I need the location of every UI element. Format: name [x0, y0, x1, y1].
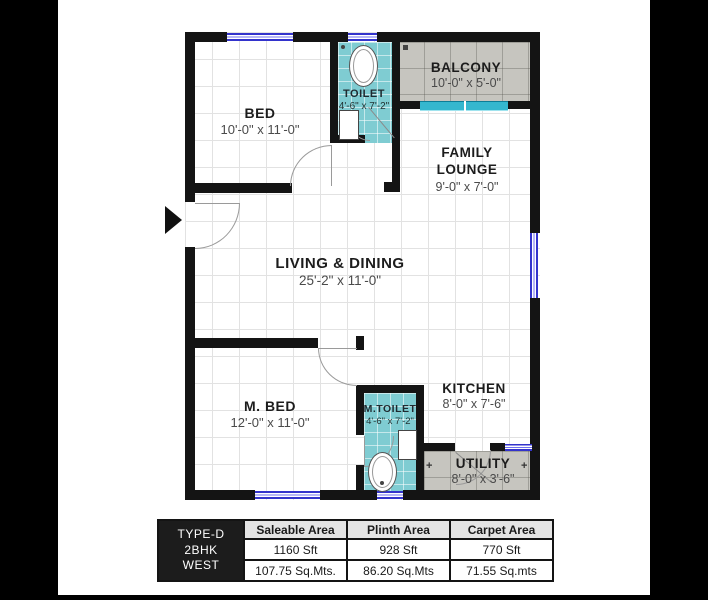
saleable-sqm-value: 107.75 Sq.Mts. [244, 560, 347, 581]
room-name: BALCONY [406, 60, 526, 75]
unit-type-line: 2BHK [159, 543, 243, 559]
floor-plan-page: + + BED 10'-0" x 11'-0" TOILET 4'-6" x 7… [0, 0, 708, 600]
wall-right-upper [530, 32, 540, 233]
wall-toilet-family [392, 32, 400, 192]
saleable-sft-value: 1160 Sft [244, 539, 347, 560]
wall-stub-foot [384, 182, 400, 192]
column-header-carpet: Carpet Area [450, 520, 553, 539]
unit-type-line: WEST [159, 558, 243, 574]
room-dims: 12'-0" x 11'-0" [210, 415, 330, 430]
room-dims: 10'-0" x 5'-0" [406, 76, 526, 90]
toilet-faucet-icon [341, 45, 345, 49]
unit-type-cell: TYPE-D 2BHK WEST [158, 520, 244, 581]
unit-type-line: TYPE-D [159, 527, 243, 543]
table-header-row: TYPE-D 2BHK WEST Saleable Area Plinth Ar… [158, 520, 553, 539]
wall-living-mbed [185, 338, 318, 348]
wall-top-right [377, 32, 540, 42]
plinth-sft-value: 928 Sft [347, 539, 450, 560]
wall-bottom-left [185, 490, 255, 500]
room-dims: 4'-6" x 7'-2" [326, 101, 402, 112]
balcony-drain-icon [403, 45, 408, 50]
wall-utility-top-left [424, 443, 455, 451]
room-dims: 10'-0" x 11'-0" [200, 122, 320, 137]
sliding-window-balcony-right-icon [466, 101, 508, 111]
window-mtoilet-icon [377, 491, 403, 499]
room-label-balcony: BALCONY 10'-0" x 5'-0" [406, 60, 526, 90]
wall-top-mid [293, 32, 348, 42]
wall-bed-bottom [185, 183, 292, 193]
room-dims: 4'-6" x 7'-2" [352, 416, 428, 427]
room-label-toilet: TOILET 4'-6" x 7'-2" [326, 88, 402, 112]
room-label-mbed: M. BED 12'-0" x 11'-0" [210, 398, 330, 430]
room-label-kitchen: KITCHEN 8'-0" x 7'-6" [414, 381, 534, 411]
wall-utility-top-right [490, 443, 505, 451]
room-name: TOILET [326, 88, 402, 100]
mtoilet-sink-icon [398, 430, 417, 460]
room-name: BED [200, 105, 320, 121]
toilet-sink-icon [339, 110, 359, 140]
window-mbed-icon [255, 491, 320, 499]
room-dims: 25'-2" x 11'-0" [260, 273, 420, 288]
room-name: LIVING & DINING [260, 255, 420, 272]
room-label-living-dining: LIVING & DINING 25'-2" x 11'-0" [260, 255, 420, 288]
room-name: FAMILY LOUNGE [412, 145, 522, 179]
mtoilet-faucet-icon [380, 481, 384, 485]
column-header-plinth: Plinth Area [347, 520, 450, 539]
wall-bottom-mid [320, 490, 377, 500]
mtoilet-wc-icon [368, 452, 397, 492]
room-dims: 8'-0" x 3'-6" [423, 472, 543, 486]
room-label-family-lounge: FAMILY LOUNGE 9'-0" x 7'-0" [412, 145, 522, 194]
wall-balcony-bottom-right [508, 101, 532, 109]
column-header-saleable: Saleable Area [244, 520, 347, 539]
room-label-utility: UTILITY 8'-0" x 3'-6" [423, 456, 543, 486]
room-label-bed: BED 10'-0" x 11'-0" [200, 105, 320, 137]
toilet-wc-icon [349, 45, 378, 87]
plinth-sqm-value: 86.20 Sq.Mts [347, 560, 450, 581]
window-toilet-icon [348, 33, 377, 41]
entrance-arrow-icon [165, 206, 182, 234]
carpet-sqm-value: 71.55 Sq.mts [450, 560, 553, 581]
window-bed-icon [227, 33, 293, 41]
wall-left-lower [185, 247, 195, 500]
area-table: TYPE-D 2BHK WEST Saleable Area Plinth Ar… [157, 519, 554, 582]
room-name: M. BED [210, 398, 330, 414]
window-living-icon [530, 233, 538, 298]
wall-mtoilet-left-lower [356, 465, 364, 500]
window-utility-icon [505, 444, 532, 451]
wall-left-upper [185, 32, 195, 202]
sliding-window-balcony-left-icon [420, 101, 464, 111]
room-dims: 9'-0" x 7'-0" [412, 180, 522, 194]
carpet-sft-value: 770 Sft [450, 539, 553, 560]
room-name: UTILITY [423, 456, 543, 471]
room-dims: 8'-0" x 7'-6" [414, 397, 534, 411]
room-name: KITCHEN [414, 381, 534, 396]
wall-door-jamb [356, 336, 364, 350]
